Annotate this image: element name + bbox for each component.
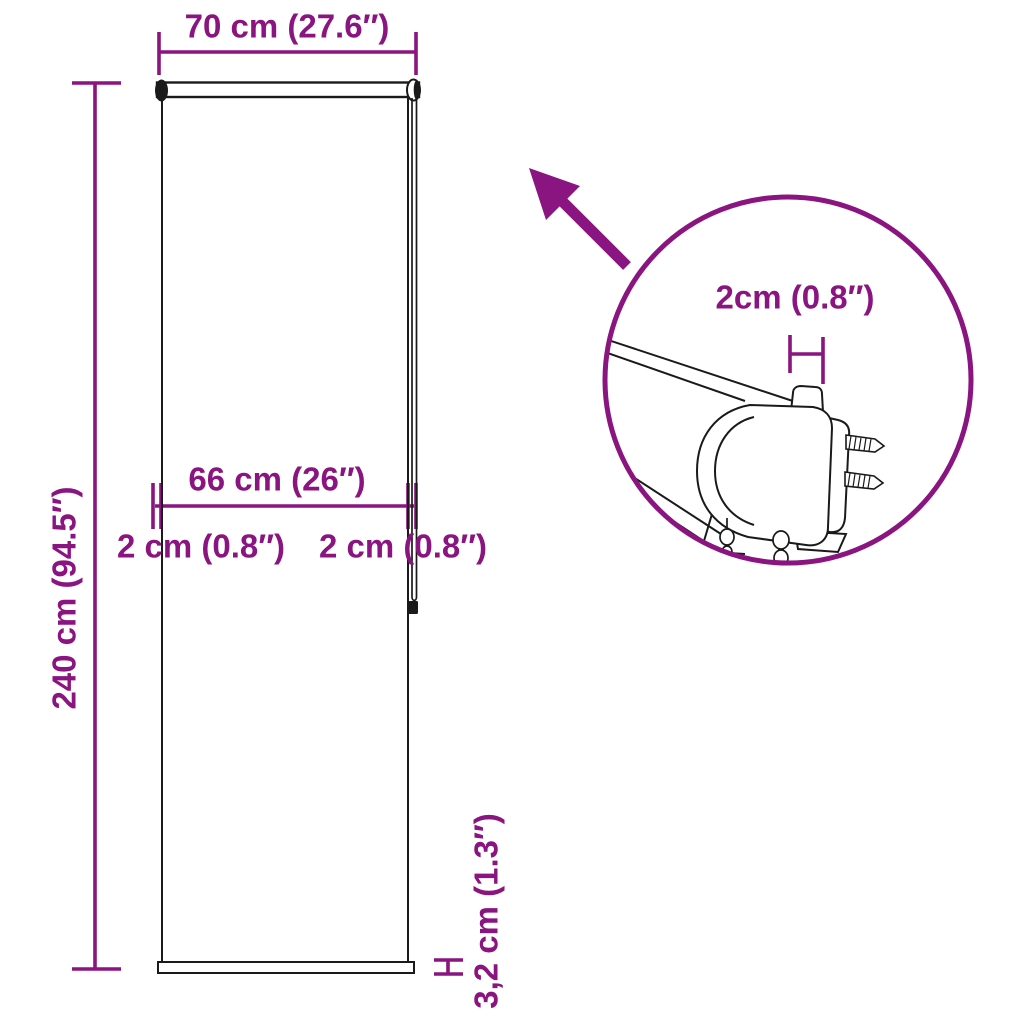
blind-top-tube: [157, 83, 419, 98]
side-offset-left-label: 2 cm (0.8″): [117, 530, 285, 563]
side-offset-right-label: 2 cm (0.8″): [319, 530, 487, 563]
bottom-bar-height-label: 3,2 cm (1.3″): [470, 813, 503, 1009]
fabric-width-label: 66 cm (26″): [188, 463, 365, 496]
screw-icon: [845, 472, 883, 489]
roller-tube-top-edge: [596, 336, 820, 410]
product-dimension-diagram: 70 cm (27.6″) 240 cm (94.5″) 66 cm (26″)…: [0, 0, 1024, 1024]
bracket-tab-dimension-line: [790, 335, 823, 384]
diagram-line-art: [0, 0, 1024, 1024]
bracket-tab-width-label: 2cm (0.8″): [716, 281, 875, 314]
screw-icon: [846, 435, 884, 452]
blind-bottom-bar: [158, 962, 414, 973]
height-label: 240 cm (94.5″): [48, 486, 81, 709]
bottom-bar-dimension-line: [434, 960, 463, 974]
pull-chain-loop-bottom: [412, 597, 417, 600]
tube-right-end-cap-shadow: [414, 81, 420, 100]
roller-tube-seam: [596, 349, 745, 401]
roller-end-cap: [697, 405, 832, 545]
tube-left-end-cap: [155, 80, 168, 102]
bracket-detail-drawing: [590, 336, 884, 566]
total-width-label: 70 cm (27.6″): [185, 10, 390, 43]
roller-blind-drawing: [155, 80, 420, 974]
zoom-arrow-icon: [529, 168, 627, 266]
pull-chain-connector: [408, 601, 418, 614]
